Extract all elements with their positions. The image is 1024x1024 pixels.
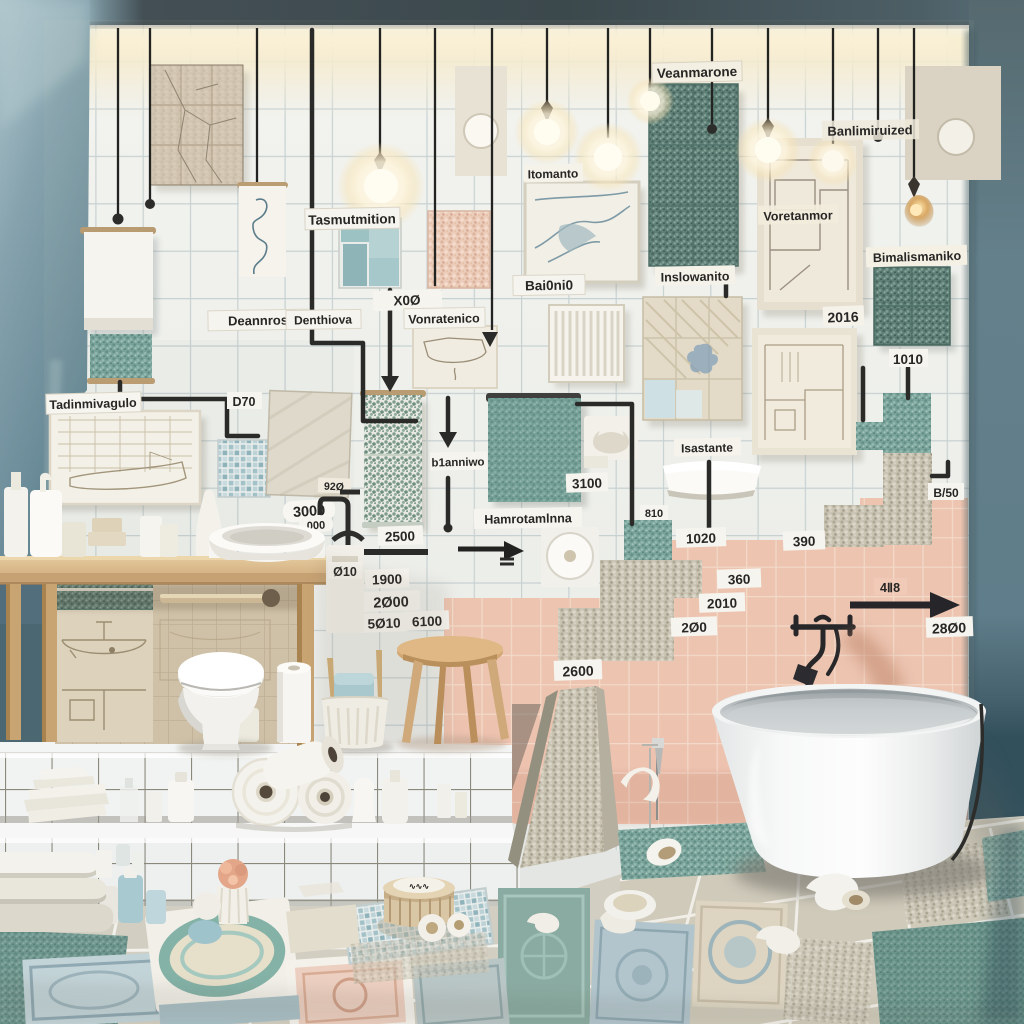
- svg-text:Banlimiruized: Banlimiruized: [827, 122, 913, 138]
- svg-text:Isastante: Isastante: [681, 441, 734, 456]
- svg-text:Deannros: Deannros: [228, 312, 288, 328]
- svg-text:Bimalismaniko: Bimalismaniko: [873, 249, 962, 265]
- svg-text:Itomanto: Itomanto: [528, 167, 579, 182]
- svg-text:∿∿∿: ∿∿∿: [409, 882, 429, 891]
- svg-text:810: 810: [645, 508, 663, 520]
- svg-text:2500: 2500: [385, 528, 416, 544]
- svg-text:Vonratenico: Vonratenico: [408, 311, 480, 326]
- svg-text:2Ø0: 2Ø0: [681, 620, 707, 636]
- svg-text:2016: 2016: [827, 308, 859, 325]
- svg-text:Inslowanito: Inslowanito: [661, 269, 730, 284]
- svg-text:360: 360: [728, 572, 751, 588]
- svg-text:b1anniwo: b1anniwo: [431, 457, 484, 470]
- svg-text:Tasmutmition: Tasmutmition: [308, 211, 396, 228]
- svg-text:D70: D70: [233, 395, 256, 409]
- svg-text:4Ⅱ8: 4Ⅱ8: [880, 581, 900, 595]
- svg-text:3100: 3100: [572, 475, 603, 491]
- svg-text:390: 390: [793, 534, 816, 550]
- svg-text:Voretanmor: Voretanmor: [763, 208, 833, 223]
- svg-text:X0Ø: X0Ø: [393, 293, 421, 309]
- svg-text:Veanmarone: Veanmarone: [657, 64, 738, 81]
- svg-text:28Ø0: 28Ø0: [932, 619, 967, 636]
- svg-text:2010: 2010: [707, 595, 738, 611]
- svg-text:1020: 1020: [686, 530, 717, 546]
- svg-text:Tadinmivagulo: Tadinmivagulo: [49, 396, 137, 412]
- svg-text:Bai0ni0: Bai0ni0: [525, 278, 573, 294]
- svg-text:B/50: B/50: [933, 486, 959, 500]
- svg-text:2600: 2600: [562, 662, 594, 679]
- svg-text:Hamrotamlnna: Hamrotamlnna: [484, 511, 573, 527]
- svg-text:1010: 1010: [893, 352, 923, 367]
- svg-text:Denthiova: Denthiova: [294, 312, 353, 327]
